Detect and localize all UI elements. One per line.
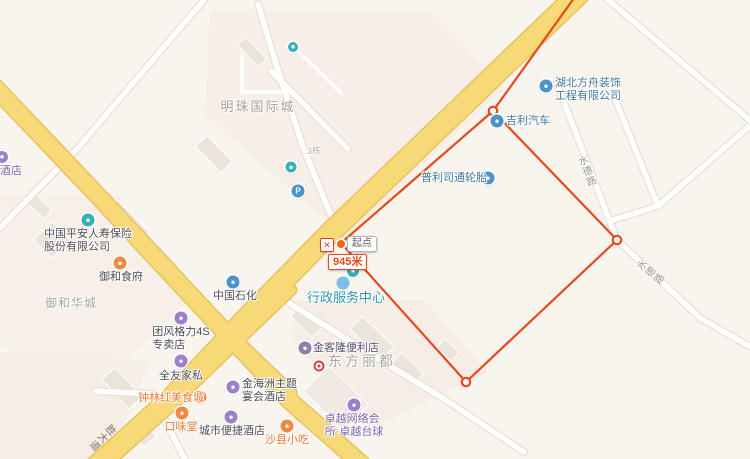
poi-jinhaizhou-hotel-icon[interactable]: ● [227,381,240,394]
poi-kouweitang-icon[interactable]: ● [176,407,189,420]
poi-admin-service-center[interactable]: 行政服务中心 [307,291,385,305]
poi-zhonglinhong-food-city[interactable]: 钟林红美食城 [138,392,204,405]
poi-hotel-left-edge-icon[interactable]: ● [0,151,8,163]
poi-quanyou-furniture-icon[interactable]: ● [175,355,188,368]
poi-gree-4s-store-icon[interactable]: ● [175,312,188,325]
poi-zhuoyue-internet-billiards-icon[interactable]: ● [348,399,361,412]
poi-pingan-insurance[interactable]: 中国平安人寿保险股份有限公司 [44,228,132,253]
poi-shaxian-snacks[interactable]: 沙县小吃 [265,434,309,447]
poi-hotel-left-edge[interactable]: 酒店 [0,165,22,178]
poi-gree-4s-store[interactable]: 团风格力4S专卖店 [152,326,209,351]
poi-geely-auto-icon[interactable]: ● [491,115,504,128]
poi-quanyou-furniture[interactable]: 全友家私 [159,370,203,383]
poi-sinopec[interactable]: 中国石化 [213,290,257,303]
poi-yuhe-restaurant[interactable]: 御和食府 [99,271,143,284]
poi-hubei-fangzhou-decoration-icon[interactable]: ● [540,80,553,93]
area-label-dongfanglidu: 东方丽都 [328,355,396,368]
red-poi-icon[interactable] [314,361,325,372]
poi-zhuoyue-internet-billiards[interactable]: 卓越网络会所·卓越台球 [325,413,384,438]
label-building-3: 3栋 [307,145,321,158]
poi-city-comfort-inn-icon[interactable]: ● [225,411,238,424]
poi-bridgestone-tires[interactable]: 普利司通轮胎 [421,172,487,185]
measure-start-tooltip: 起点 [347,236,377,252]
poi-yuhe-restaurant-icon[interactable]: ● [114,257,127,270]
measure-distance-tooltip: 945米 [328,254,367,270]
area-label-yuhehuacheng: 御和华城 [45,297,97,310]
poi-city-comfort-inn[interactable]: 城市便捷酒店 [199,425,265,438]
road-label-shuidelu-south: 水德路 [632,259,666,289]
poi-small-upper-icon[interactable]: ● [286,162,297,173]
poi-shaxian-snacks-icon[interactable]: ● [281,420,294,433]
poi-sinopec-icon[interactable]: ● [227,276,240,289]
pond-icon [337,277,350,290]
poi-jinkelong-store[interactable]: 金客隆便利店 [313,342,379,355]
poi-jinhaizhou-hotel[interactable]: 金海洲主题宴会酒店 [242,378,297,403]
poi-label-layer: 胜大道水德路水德路明珠国际城御和华城东方丽都3栋●酒店●湖北方舟装饰工程有限公司… [0,0,750,459]
poi-geely-auto[interactable]: 吉利汽车 [506,115,550,128]
parking-icon[interactable]: P [292,185,305,198]
measure-close-button[interactable]: ✕ [320,238,334,252]
transit-stop-icon[interactable]: ● [288,42,298,52]
poi-jinkelong-store-icon[interactable]: ● [299,342,312,355]
poi-hubei-fangzhou-decoration[interactable]: 湖北方舟装饰工程有限公司 [555,77,621,102]
poi-kouweitang[interactable]: 口味堂 [165,421,198,434]
road-label-shengdadao: 胜大道 [85,420,117,452]
poi-pingan-insurance-icon[interactable]: ● [82,214,95,227]
map-viewport[interactable]: 胜大道水德路水德路明珠国际城御和华城东方丽都3栋●酒店●湖北方舟装饰工程有限公司… [0,0,750,459]
road-label-shuidelu-north: 水德路 [573,154,596,189]
area-label-mingzhu: 明珠国际城 [220,101,295,114]
